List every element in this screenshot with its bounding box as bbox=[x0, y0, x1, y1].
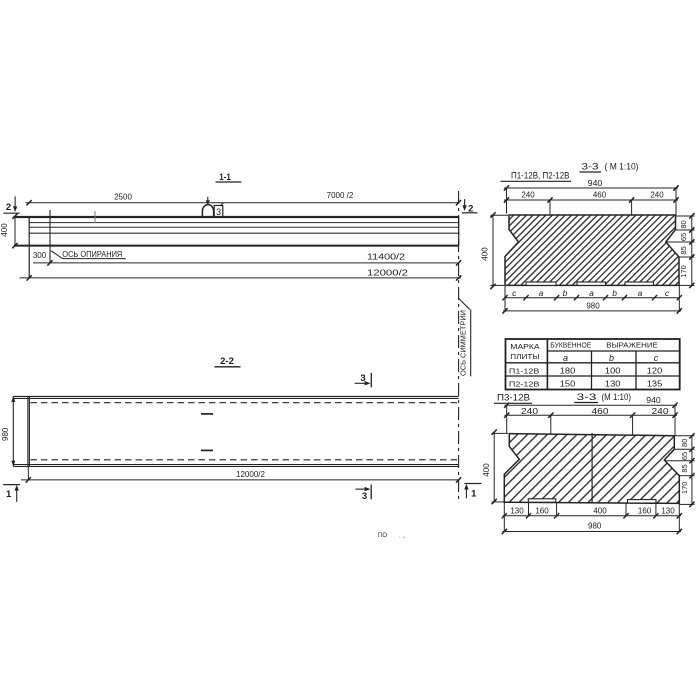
svg-text:П1-12В, П2-12В: П1-12В, П2-12В bbox=[511, 170, 570, 180]
svg-text:1: 1 bbox=[471, 489, 477, 500]
svg-text:65: 65 bbox=[680, 452, 689, 460]
svg-text:120: 120 bbox=[647, 366, 663, 375]
svg-text:980: 980 bbox=[1, 427, 10, 441]
svg-text:85: 85 bbox=[680, 464, 689, 472]
svg-text:с: с bbox=[512, 288, 517, 298]
svg-text:( М 1:10): ( М 1:10) bbox=[605, 162, 639, 172]
svg-text:3-3: 3-3 bbox=[577, 392, 597, 402]
svg-text:240: 240 bbox=[650, 190, 664, 199]
svg-text:400: 400 bbox=[593, 507, 607, 516]
svg-text:2-2: 2-2 bbox=[220, 356, 234, 367]
svg-text:а: а bbox=[638, 288, 643, 298]
svg-text:ПЛИТЫ: ПЛИТЫ bbox=[510, 352, 539, 361]
svg-text:БУКВЕННОЕ: БУКВЕННОЕ bbox=[550, 341, 591, 350]
svg-text:(М 1:10): (М 1:10) bbox=[602, 392, 632, 402]
svg-text:160: 160 bbox=[535, 507, 549, 516]
svg-text:b: b bbox=[612, 288, 617, 298]
svg-text:400: 400 bbox=[0, 223, 9, 237]
svg-text:ПО: ПО bbox=[378, 533, 387, 539]
svg-text:с: с bbox=[665, 288, 670, 298]
svg-text:2500: 2500 bbox=[114, 193, 132, 202]
svg-text:3-3: 3-3 bbox=[582, 162, 599, 172]
svg-text:940: 940 bbox=[588, 179, 603, 188]
svg-text:11400/2: 11400/2 bbox=[367, 253, 406, 262]
svg-text:ОСЬ СИММЕТРИИ: ОСЬ СИММЕТРИИ bbox=[458, 310, 467, 376]
svg-text:460: 460 bbox=[592, 407, 610, 416]
svg-text:ВЫРАЖЕНИЕ: ВЫРАЖЕНИЕ bbox=[606, 341, 658, 350]
svg-text:80: 80 bbox=[679, 220, 688, 228]
svg-text:135: 135 bbox=[647, 380, 663, 389]
svg-text:160: 160 bbox=[638, 507, 652, 516]
svg-text:2: 2 bbox=[6, 202, 11, 213]
svg-text:180: 180 bbox=[560, 366, 576, 375]
svg-text:П2-12В: П2-12В bbox=[509, 380, 540, 389]
svg-text:85: 85 bbox=[679, 246, 688, 254]
svg-text:12000/2: 12000/2 bbox=[367, 268, 409, 277]
svg-text:940: 940 bbox=[646, 396, 661, 405]
svg-text:а: а bbox=[563, 353, 568, 363]
svg-text:ОСЬ ОПИРАНИЯ: ОСЬ ОПИРАНИЯ bbox=[62, 250, 122, 259]
svg-text:300: 300 bbox=[33, 251, 47, 260]
svg-text:1: 1 bbox=[6, 489, 12, 500]
svg-text:240: 240 bbox=[521, 190, 535, 199]
svg-text:980: 980 bbox=[588, 521, 602, 530]
svg-text:b: b bbox=[609, 353, 614, 363]
svg-text:3: 3 bbox=[362, 491, 367, 502]
svg-text:7000 /2: 7000 /2 bbox=[327, 191, 354, 200]
svg-text:П1-12В: П1-12В bbox=[509, 366, 540, 375]
svg-text:170: 170 bbox=[680, 482, 689, 495]
svg-text:170: 170 bbox=[679, 265, 688, 278]
svg-text:а: а bbox=[539, 288, 544, 298]
svg-text:с: с bbox=[654, 353, 659, 363]
svg-text:240: 240 bbox=[521, 407, 539, 416]
svg-text:12000/2: 12000/2 bbox=[236, 470, 265, 479]
svg-text:400: 400 bbox=[481, 247, 490, 261]
svg-text:. ..: . .. bbox=[399, 534, 406, 540]
svg-text:b: b bbox=[563, 288, 568, 298]
svg-text:65: 65 bbox=[679, 233, 688, 241]
svg-text:400: 400 bbox=[482, 463, 491, 477]
svg-text:130: 130 bbox=[605, 380, 621, 389]
svg-text:240: 240 bbox=[652, 407, 670, 416]
svg-text:МАРКА: МАРКА bbox=[510, 342, 540, 351]
svg-text:П3-12В: П3-12В bbox=[497, 393, 530, 403]
svg-text:130: 130 bbox=[661, 507, 675, 516]
svg-text:а: а bbox=[589, 288, 594, 298]
svg-text:80: 80 bbox=[680, 439, 689, 447]
svg-text:3: 3 bbox=[216, 207, 221, 217]
svg-text:100: 100 bbox=[605, 366, 621, 375]
svg-text:980: 980 bbox=[586, 302, 600, 311]
svg-text:150: 150 bbox=[560, 380, 576, 389]
svg-text:460: 460 bbox=[593, 190, 607, 199]
svg-text:130: 130 bbox=[510, 507, 524, 516]
